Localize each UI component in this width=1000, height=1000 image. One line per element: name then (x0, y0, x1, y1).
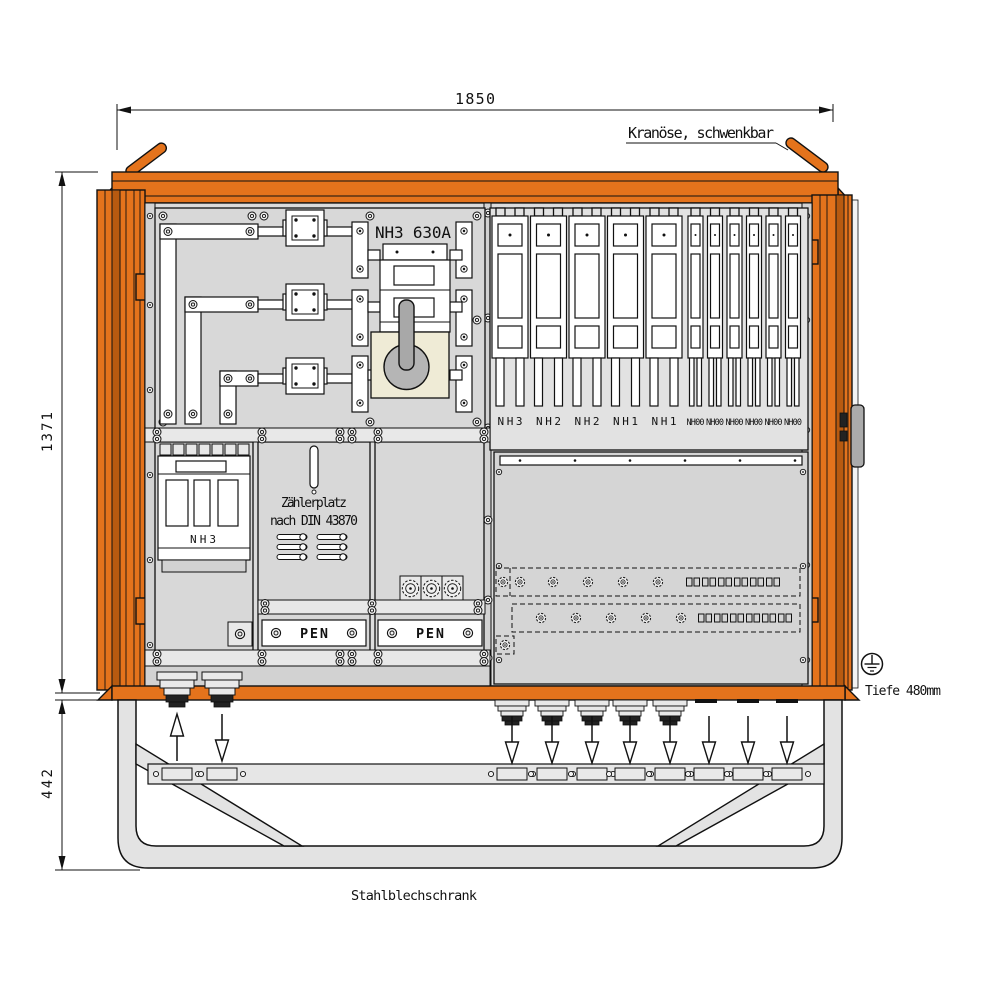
flow-arrows (171, 714, 794, 763)
frame-rail-h2 (258, 600, 485, 615)
crane-lug-right (784, 136, 830, 174)
switch-lever (399, 300, 414, 370)
pen-bar-label: PEN (416, 626, 444, 642)
meter-label-line1: Zählerplatz (281, 496, 347, 511)
fuse-strip-panel: NH3 NH2 NH2 NH1 NH1 NH00 NH00 NH00 NH00 … (490, 208, 808, 450)
fuse-strip-label: NH00 (784, 418, 802, 428)
nh3-switch-label: NH3 (190, 533, 216, 546)
main-switch-nh3-630a: NH3 630A (371, 223, 451, 398)
incoming-arrow-icon (171, 714, 184, 761)
left-mounting-rail (145, 203, 155, 686)
dimension-width-label: 1850 (455, 90, 495, 108)
terminal-block (283, 284, 327, 320)
knockout-icon (402, 580, 460, 596)
fuse-strip-label: NH1 (613, 415, 638, 428)
stand-brace-left (136, 744, 302, 846)
vent-slot-icon (277, 544, 307, 550)
fuse-strip-label: NH2 (575, 415, 600, 428)
door-lock-icon (840, 431, 847, 441)
lower-left-sections: NH3 Zählerplatz nach DIN 43870 (145, 428, 490, 686)
frame-rail-bottom (145, 650, 490, 666)
pen-bar-label: PEN (300, 626, 328, 642)
dimension-stand-label: 442 (40, 769, 56, 799)
pen-bar-right: PEN (378, 620, 482, 646)
tube-stand (118, 700, 842, 868)
dimension-height-label: 1371 (40, 412, 56, 452)
depth-note: Tiefe 480mm (862, 654, 942, 700)
meter-label-line2: nach DIN 43870 (270, 514, 358, 529)
vent-slot-icon (277, 554, 307, 560)
cabinet-technical-drawing: 1850 1371 442 Kranöse, schwenkbar (0, 0, 1000, 1000)
vent-slot-icon (317, 554, 347, 560)
crane-eye-label: Kranöse, schwenkbar (628, 124, 774, 142)
left-door (97, 190, 152, 690)
fuse-strip-label: NH2 (536, 415, 561, 428)
crane-eye-callout: Kranöse, schwenkbar (626, 124, 788, 150)
pen-bar-left: PEN (262, 620, 366, 646)
right-door (806, 195, 864, 690)
vent-slot-icon (277, 534, 307, 540)
fuse-strip-label: NH00 (765, 418, 783, 428)
fuse-strip-label: NH00 (726, 418, 744, 428)
outgoing-arrow-icon (703, 716, 716, 763)
earth-symbol-icon (862, 654, 883, 675)
frame-rail-mid (145, 428, 490, 443)
cabinet-roof (98, 172, 852, 203)
busbar-panel: NH3 630A (155, 208, 485, 430)
fuse-strip-label: NH3 (498, 415, 523, 428)
stand-brace-right (658, 744, 824, 846)
door-lock-icon (840, 413, 847, 427)
column-spare (375, 442, 484, 686)
main-switch-label: NH3 630A (375, 223, 451, 242)
outgoing-arrow-icon (216, 714, 229, 761)
depth-label: Tiefe 480mm (865, 684, 941, 699)
socket-knockouts (400, 576, 463, 601)
door-handle (851, 405, 864, 467)
left-height-dimension: 1371 (40, 172, 100, 693)
key-slot-icon (310, 446, 318, 488)
outgoing-arrow-icon (742, 716, 755, 763)
vent-slot-icon (317, 544, 347, 550)
drawing-sheet: 1850 1371 442 Kranöse, schwenkbar (0, 0, 1000, 1000)
cabinet-type-label: Stahlblechschrank (351, 888, 477, 904)
fuse-strip-label: NH00 (745, 418, 763, 428)
outgoing-arrow-icon (781, 716, 794, 763)
fuse-strip-label: NH00 (687, 418, 705, 428)
fuse-strip-label: NH00 (706, 418, 724, 428)
vent-slot-icon (317, 534, 347, 540)
nh3-fuse-switch: NH3 (158, 444, 250, 572)
terminal-block (283, 358, 327, 394)
fuse-strip-label: NH1 (652, 415, 677, 428)
lower-right-panel (494, 452, 808, 684)
terminal-block (283, 210, 327, 246)
